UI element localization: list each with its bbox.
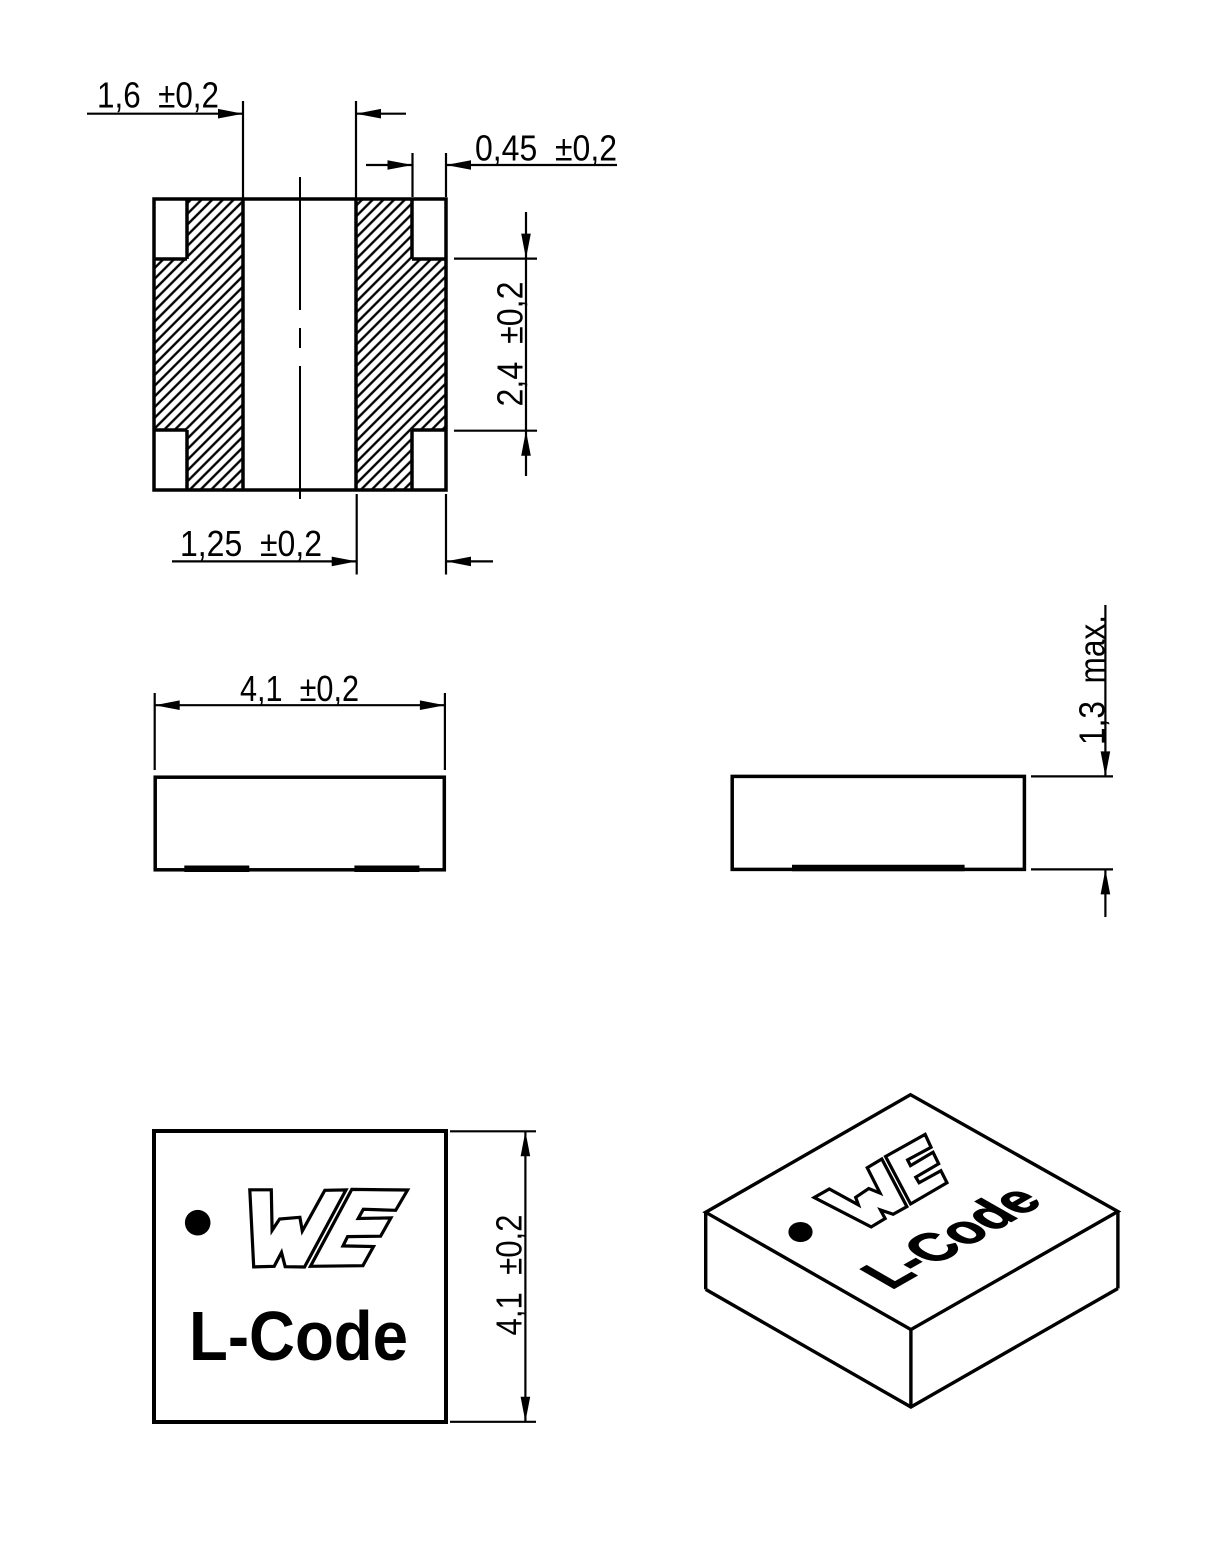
svg-text:1,3 max.: 1,3 max. <box>1072 615 1113 745</box>
svg-text:0,45 ±0,2: 0,45 ±0,2 <box>475 128 617 169</box>
svg-text:1,6 ±0,2: 1,6 ±0,2 <box>97 75 219 116</box>
svg-text:L-Code: L-Code <box>189 1297 408 1375</box>
svg-text:4,1 ±0,2: 4,1 ±0,2 <box>489 1215 530 1336</box>
svg-text:2,4 ±0,2: 2,4 ±0,2 <box>490 282 531 407</box>
svg-text:1,25 ±0,2: 1,25 ±0,2 <box>180 523 322 564</box>
svg-text:4,1 ±0,2: 4,1 ±0,2 <box>240 668 359 709</box>
